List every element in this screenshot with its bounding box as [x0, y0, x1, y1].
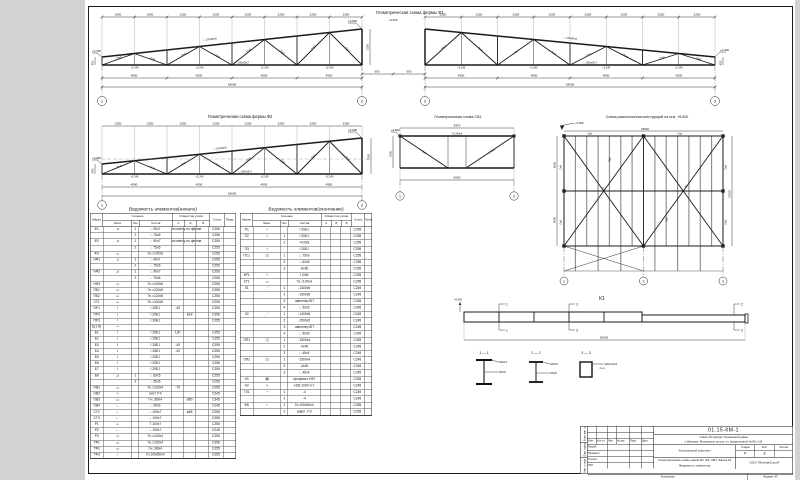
cell-hole-a: по месту по ферме: [172, 227, 184, 233]
truss-sv1-members: [399, 135, 516, 169]
member-label: ∟75х6: [277, 156, 286, 165]
cell-steel: С255: [351, 253, 365, 259]
cell-steel: С255: [209, 245, 224, 251]
beam-k1-elevation: +6.500: [454, 298, 463, 313]
cell-note: [365, 292, 372, 298]
cell-hole-v: [196, 264, 209, 270]
node-label: +2.240: [260, 175, 269, 179]
cell-note: [365, 253, 372, 259]
cell-sketch: [103, 264, 132, 270]
cell-hole-b: [184, 251, 196, 257]
cell-hole-a: [172, 434, 184, 440]
cell-hole-v: [196, 434, 209, 440]
cell-hole-b: [331, 227, 341, 233]
cell-pos: [132, 385, 139, 391]
cell-steel: С245: [351, 370, 365, 376]
cell-sketch: ▭: [103, 300, 132, 306]
cell-pos: [132, 337, 139, 343]
cell-mark: ПР1: [91, 306, 104, 312]
cell-hole-a: [172, 422, 184, 428]
cell-hole-b: [184, 276, 196, 282]
cell-hole-a: [321, 325, 331, 331]
cell-sketch: Ι: [103, 318, 132, 324]
cell-pos: [132, 428, 139, 434]
cell-note: [365, 364, 372, 370]
cell-sketch: [253, 260, 281, 266]
cell-note: [224, 446, 236, 452]
cell-pos: 2: [132, 276, 139, 282]
sheet-value: 8: [755, 451, 774, 458]
dim-label: 4500: [261, 74, 268, 78]
cell-note: [365, 227, 372, 233]
cell-sketch: ▭: [103, 446, 132, 452]
cell-steel: С255: [209, 331, 224, 337]
cell-steel: С255: [209, 379, 224, 385]
cell-hole-v: [341, 344, 351, 350]
node-label: +2.240: [130, 175, 139, 179]
cell-hole-a: -40: [172, 343, 184, 349]
purlin-label: Пр1: [608, 157, 612, 162]
cell-note: [224, 300, 236, 306]
dim-label: 18000: [600, 336, 609, 340]
cell-hole-b: [184, 428, 196, 434]
cell-steel: С255: [209, 343, 224, 349]
cell-hole-v: [196, 385, 209, 391]
cell-hole-b: [184, 300, 196, 306]
dim-label: 2250: [245, 122, 252, 126]
table-header: Марка Сечение Эскиз Поз. Состав Отверсти…: [91, 214, 236, 228]
cell-hole-a: [321, 351, 331, 357]
cell-mark: Н2: [241, 383, 254, 389]
cell-hole-a: [321, 227, 331, 233]
cell-hole-a: [321, 338, 331, 344]
section-note: 240х8: [550, 371, 558, 375]
cell-pos: [132, 251, 139, 257]
dim-label: 4500: [531, 74, 538, 78]
cell-hole-v: [341, 299, 351, 305]
dim-label: 6000: [553, 161, 557, 168]
cell-hole-a: [321, 331, 331, 337]
cell-comp: ∟45х4: [288, 370, 321, 376]
cell-comp: ∟75х6: [139, 276, 172, 282]
cell-hole-v: [341, 305, 351, 311]
cell-hole-v: [341, 234, 351, 240]
cell-sketch: ▭: [103, 251, 132, 257]
cell-steel: С255: [209, 349, 224, 355]
cell-hole-v: [196, 276, 209, 282]
cell-hole-v: [196, 428, 209, 434]
cell-pos: [132, 325, 139, 331]
cell-comp: -4: [288, 396, 321, 402]
cell-pos: [132, 288, 139, 294]
cell-note: [365, 286, 372, 292]
member-label: ∟75х6: [438, 44, 447, 53]
cell-steel: С255: [209, 337, 224, 343]
cell-hole-b: [184, 337, 196, 343]
cell-pos: 1: [281, 253, 288, 259]
cell-hole-v: [196, 446, 209, 452]
cell-hole-b: [331, 344, 341, 350]
elevation-mark: +6.600: [389, 18, 398, 22]
cell-steel: С245: [351, 383, 365, 389]
cell-sketch: ∟: [103, 410, 132, 416]
dim-label: 3150: [366, 43, 370, 50]
beam-k1-sections: 1 — 1 200х12 320х8 2 — 2 200х10 240х8 3 …: [476, 351, 618, 384]
cell-hole-a: [172, 282, 184, 288]
cell-comp: швеллер 8П: [288, 325, 321, 331]
section-flag: 2: [741, 302, 743, 306]
drawing-sheet-page: { "titles": { "f1": "Геометрическая схем…: [0, 0, 800, 480]
cell-mark: ФБ: [241, 403, 254, 409]
truss-sv1-labels: ∟75х6 ∟75х6 Гн.□80х4: [418, 131, 496, 155]
cell-comp: ∟100х7: [139, 410, 172, 416]
cell-steel: С255: [209, 440, 224, 446]
truss-f1-drawing: Геометрическая схема фермы Ф1 ∟75х6 ∟75х…: [90, 8, 736, 112]
sheets-value: [774, 451, 793, 458]
cell-comp: Ι 20Б1: [139, 367, 172, 373]
cell-hole-v: [196, 331, 209, 337]
cell-hole-a: [172, 398, 184, 404]
cell-comp: [139, 325, 172, 331]
cell-hole-a: [172, 361, 184, 367]
dim-label: 600: [407, 70, 412, 74]
cell-hole-b: [184, 392, 196, 398]
cell-comp: -410х8: [288, 240, 321, 246]
dim-label: 2250: [115, 122, 122, 126]
cell-hole-v: [196, 367, 209, 373]
layout-plan-drawing: Схема расположения конструкций на отм. +…: [550, 112, 740, 290]
cell-pos: [132, 361, 139, 367]
beam-k1-section-flags: 1 1 3 3 2 2: [499, 302, 743, 332]
plan-elevation-flag: +6.500: [560, 121, 584, 130]
cell-steel: С255: [351, 403, 365, 409]
cell-note: [224, 440, 236, 446]
cell-sketch: ▭: [103, 434, 132, 440]
cell-mark: [241, 351, 254, 357]
cell-hole-a: [172, 428, 184, 434]
cell-hole-b: [184, 452, 196, 458]
cell-sketch: [103, 233, 132, 239]
cell-hole-b: [184, 306, 196, 312]
cell-sketch: ∟: [103, 428, 132, 434]
cell-mark: [241, 299, 254, 305]
cell-pos: 2: [132, 233, 139, 239]
node-label: +2.240: [260, 66, 269, 70]
section-note: 200х10: [550, 362, 559, 366]
cell-sketch: ∟: [103, 404, 132, 410]
cell-comp: ∟63х5: [288, 260, 321, 266]
cell-note: [224, 416, 236, 422]
col-header-mark: Марка: [91, 214, 104, 227]
cell-hole-b: [331, 279, 341, 285]
cell-comp: Ι 20Б1: [139, 318, 172, 324]
cell-sketch: ◫: [253, 253, 281, 259]
cell-sketch: Ι: [103, 343, 132, 349]
cell-pos: [132, 422, 139, 428]
cell-steel: С245: [209, 428, 224, 434]
cell-hole-a: [321, 377, 331, 383]
cell-steel: С255: [351, 247, 365, 253]
cell-comp: -1500х4: [288, 338, 321, 344]
cell-steel: С255: [209, 300, 224, 306]
cell-pos: 2: [281, 344, 288, 350]
cell-comp: Гн.□100х4: [139, 385, 172, 391]
cell-hole-b: [331, 351, 341, 357]
cell-sketch: [253, 325, 281, 331]
cell-comp: Гн.□80х4: [139, 446, 172, 452]
cell-hole-v: [341, 396, 351, 402]
cell-mark: [241, 370, 254, 376]
cell-pos: 2: [281, 318, 288, 324]
cell-hole-b: [184, 373, 196, 379]
cell-hole-v: [196, 245, 209, 251]
cell-hole-v: [341, 253, 351, 259]
cell-hole-b: [184, 343, 196, 349]
cell-note: [224, 385, 236, 391]
cell-mark: [91, 264, 104, 270]
cell-comp: ∟90х7: [139, 257, 172, 263]
cell-steel: С255: [209, 227, 224, 233]
cell-hole-a: [172, 300, 184, 306]
cell-hole-v: [341, 351, 351, 357]
cell-hole-a: [172, 452, 184, 458]
cell-hole-b: [184, 446, 196, 452]
section-flag: 3: [576, 302, 578, 306]
cell-hole-b: [331, 299, 341, 305]
plan-axes: 1 2 3: [560, 246, 727, 285]
cell-mark: Б(1-8): [91, 325, 104, 331]
cell-hole-b: [331, 253, 341, 259]
cell-comp: Ι 25Б1: [139, 331, 172, 337]
cell-hole-v: [196, 325, 209, 331]
cell-note: [365, 325, 372, 331]
cell-hole-a: 120: [172, 331, 184, 337]
node-label: +2.240: [130, 66, 139, 70]
cell-note: [224, 312, 236, 318]
cell-comp: -4: [288, 390, 321, 396]
cell-steel: С255: [209, 239, 224, 245]
cell-steel: С245: [351, 338, 365, 344]
tie-label: См1: [724, 219, 728, 225]
cell-hole-b: [331, 383, 341, 389]
cell-hole-v: [196, 270, 209, 276]
cell-mark: ОП2: [241, 357, 254, 363]
member-label: ∟75х6: [113, 163, 123, 170]
cell-hole-a: [321, 390, 331, 396]
cell-mark: [241, 260, 254, 266]
cell-hole-a: [321, 344, 331, 350]
cell-hole-b: [184, 294, 196, 300]
cell-pos: 1: [281, 338, 288, 344]
cell-sketch: ∿: [253, 383, 281, 389]
drawing-title-f2: Геометрическая схема фермы Ф2: [208, 114, 273, 119]
cell-steel: С255: [209, 264, 224, 270]
cell-steel: С245: [351, 325, 365, 331]
cell-comp: Гн.□100х5: [139, 251, 172, 257]
cell-mark: Ф1: [91, 227, 104, 233]
sheets-header: Листов: [774, 445, 793, 450]
cell-hole-v: [341, 240, 351, 246]
cell-steel: С255: [209, 410, 224, 416]
copied-label: Копировал: [588, 475, 748, 480]
dim-label: 1500: [389, 150, 393, 157]
cell-hole-a: [321, 247, 331, 253]
node-label: +2.240: [457, 66, 466, 70]
cell-hole-a: [172, 440, 184, 446]
cell-pos: [132, 416, 139, 422]
cell-sketch: [253, 240, 281, 246]
cell-mark: СТ1: [91, 300, 104, 306]
cell-mark: ОВ3: [91, 398, 104, 404]
cell-mark: Р1: [91, 422, 104, 428]
cell-hole-b: [331, 266, 341, 272]
cell-hole-b: [184, 233, 196, 239]
cell-mark: ТФ3: [91, 452, 104, 458]
member-label: ∟75х6: [342, 44, 351, 53]
cell-comp: Гн.100х50х4: [288, 403, 321, 409]
dim-label: 2250: [147, 122, 154, 126]
role-label: Разраб.: [588, 445, 608, 451]
truss-f2-drawing: Геометрическая схема фермы Ф2 ∟75х6 ∟75х…: [90, 112, 390, 212]
tie-label: См1: [724, 164, 728, 170]
cell-hole-b: [184, 434, 196, 440]
cell-hole-a: [321, 234, 331, 240]
col-header-section: Сечение: [103, 214, 172, 221]
stage-grid: Стадия Лист Листов Р 8: [736, 445, 793, 457]
cell-note: [224, 379, 236, 385]
cell-pos: 2: [281, 260, 288, 266]
cell-hole-b: [331, 286, 341, 292]
dim-label: 4500: [196, 183, 203, 187]
cell-note: [224, 306, 236, 312]
cell-note: [224, 337, 236, 343]
table-title: Ведомость элементов(начало): [90, 206, 236, 213]
col-header-steel: Сталь: [352, 214, 365, 227]
cell-pos: 3: [281, 325, 288, 331]
cell-comp: Ι 20Б1: [139, 355, 172, 361]
cell-mark: СТ2: [91, 410, 104, 416]
beam-k1-label: К1: [599, 296, 605, 302]
cell-comp: швеллер 8П: [288, 299, 321, 305]
cell-sketch: ▭: [103, 398, 132, 404]
cell-pos: [132, 306, 139, 312]
cell-hole-v: [196, 337, 209, 343]
cell-hole-a: [172, 245, 184, 251]
cell-hole-b: [184, 361, 196, 367]
cell-pos: 1: [132, 373, 139, 379]
format-label: Формат А3: [748, 475, 794, 480]
sig-col-podp: Подп.: [630, 439, 642, 445]
cell-mark: [91, 233, 104, 239]
cell-pos: 2: [132, 245, 139, 251]
cell-pos: 1: [132, 270, 139, 276]
truss-sv1-drawing: Геометрическая схема СВ1 5970 +6.600 ∟75…: [388, 112, 528, 207]
cell-hole-v: [196, 257, 209, 263]
cell-mark: [241, 409, 254, 415]
member-label: ∟100х63х7: [583, 61, 597, 65]
cell-hole-b: [331, 312, 341, 318]
cell-comp: ∟75х6: [139, 264, 172, 270]
dim-label: 450: [719, 60, 723, 65]
cell-hole-a: [321, 357, 331, 363]
cell-note: [224, 361, 236, 367]
cell-hole-v: [341, 357, 351, 363]
cell-mark: СТ3: [91, 416, 104, 422]
cell-note: [365, 357, 372, 363]
axis-label: 3: [722, 280, 724, 284]
cell-hole-a: [321, 266, 331, 272]
dim-label: 2250: [310, 122, 317, 126]
section-title: 2 — 2: [531, 351, 540, 355]
cell-hole-a: [321, 383, 331, 389]
member-label: ∟75х6: [147, 164, 157, 171]
cell-hole-b: ø18: [184, 312, 196, 318]
cell-mark: Л2: [241, 312, 254, 318]
cell-comp: Ι 25Б1: [139, 349, 172, 355]
cell-note: [365, 266, 372, 272]
elevation-mark: +6.500: [454, 298, 463, 302]
member-label: ∟75х6: [243, 47, 252, 56]
cell-steel: С255: [209, 312, 224, 318]
cell-note: [365, 247, 372, 253]
cell-hole-b: [184, 379, 196, 385]
cell-pos: 2: [281, 396, 288, 402]
cell-mark: [241, 292, 254, 298]
cell-hole-b: [331, 325, 341, 331]
cell-comp: Гн.□100х4: [288, 279, 321, 285]
cell-hole-a: [172, 270, 184, 276]
cell-hole-b: [184, 245, 196, 251]
cell-mark: [241, 305, 254, 311]
cell-hole-v: [341, 227, 351, 233]
cell-sketch: [253, 396, 281, 402]
address-line-2: п.Шушары, Московское шоссе, уч. (кадастр…: [654, 440, 793, 445]
cell-pos: 4: [281, 331, 288, 337]
cell-note: [365, 279, 372, 285]
dim-label: 4500: [326, 74, 333, 78]
cell-sketch: [253, 305, 281, 311]
cell-hole-b: [184, 440, 196, 446]
dim-label: 2250: [694, 13, 701, 17]
dim-label: 2250: [278, 122, 285, 126]
col-header-holes: Отверстия узлов: [321, 214, 351, 221]
member-label: ∟100х63х7: [235, 61, 249, 65]
cell-pos: [132, 349, 139, 355]
truss-f1-left-dims: 2250 2250 2250 2250 2250 2250 2250 2250 …: [91, 13, 370, 89]
member-label: ∟125х80х8: [213, 145, 228, 150]
cell-note: [365, 403, 372, 409]
cell-hole-b: [331, 390, 341, 396]
cell-mark: ПР2: [91, 312, 104, 318]
cell-hole-v: [341, 279, 351, 285]
cell-hole-b: [331, 370, 341, 376]
sheet-header: Лист: [755, 445, 774, 450]
cell-note: [224, 373, 236, 379]
cell-comp: -1500х5: [288, 318, 321, 324]
cell-steel: С245: [351, 312, 365, 318]
cell-comp: Гн.□120х5: [139, 288, 172, 294]
cell-comp: Гн.□100х4: [139, 434, 172, 440]
member-label: ∟75х6: [342, 153, 351, 162]
node-label: +2.240: [195, 66, 204, 70]
cell-hole-b: [184, 367, 196, 373]
cell-comp: Ι 25Б1: [139, 343, 172, 349]
dim-label: 4500: [261, 183, 268, 187]
cell-steel: С245: [351, 331, 365, 337]
cell-sketch: Ι: [103, 331, 132, 337]
cell-pos: [281, 247, 288, 253]
cell-sketch: [253, 409, 281, 415]
